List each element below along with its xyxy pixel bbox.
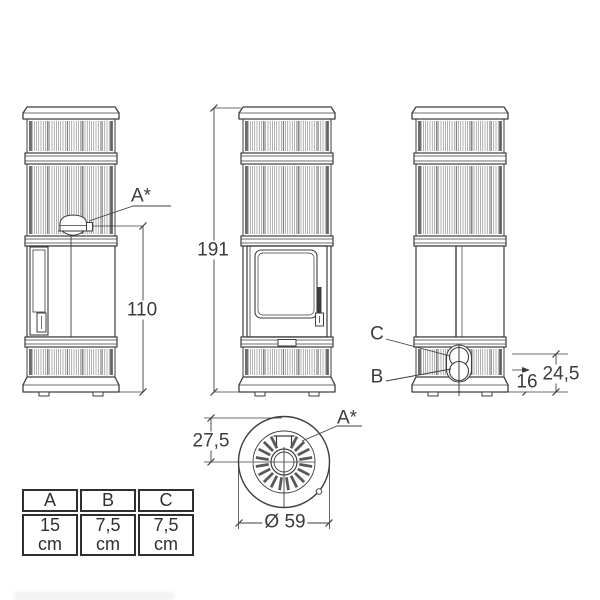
spec-table: A B C 15 cm 7,5 cm 7,5 cm — [20, 487, 196, 558]
dim-top-outlet-offset-label: 27,5 — [191, 432, 232, 451]
dim-rear-upper-offset-label: 24,5 — [541, 365, 582, 384]
left-side-view — [23, 107, 119, 396]
dim-total-height-label: 191 — [195, 241, 231, 260]
spec-value-a: 15 cm — [22, 514, 78, 556]
spec-header-a: A — [22, 489, 78, 512]
flue-damper-knob — [58, 215, 93, 235]
technical-drawing-canvas: 191 110 24,5 16 27,5 Ø 59 A* A* C B A B … — [0, 0, 600, 600]
spec-header-c: C — [138, 489, 194, 512]
flue-outlet-side-label: A* — [129, 187, 153, 206]
front-view — [239, 107, 335, 396]
right-side-view — [412, 107, 508, 396]
spec-table-value-row: 15 cm 7,5 cm 7,5 cm — [22, 514, 194, 556]
dim-rear-lower-offset-label: 16 — [514, 373, 539, 392]
dim-outlet-height-label: 110 — [125, 301, 159, 320]
connection-c-label: C — [368, 325, 386, 344]
top-view — [239, 417, 330, 509]
connection-b-label: B — [369, 368, 386, 387]
cropped-caption-ghost — [14, 592, 174, 600]
spec-header-b: B — [80, 489, 136, 512]
spec-value-c: 7,5 cm — [138, 514, 194, 556]
dim-diameter-label: Ø 59 — [262, 513, 307, 532]
flue-outlet-top-label: A* — [335, 409, 359, 428]
spec-value-b: 7,5 cm — [80, 514, 136, 556]
spec-table-header-row: A B C — [22, 489, 194, 512]
